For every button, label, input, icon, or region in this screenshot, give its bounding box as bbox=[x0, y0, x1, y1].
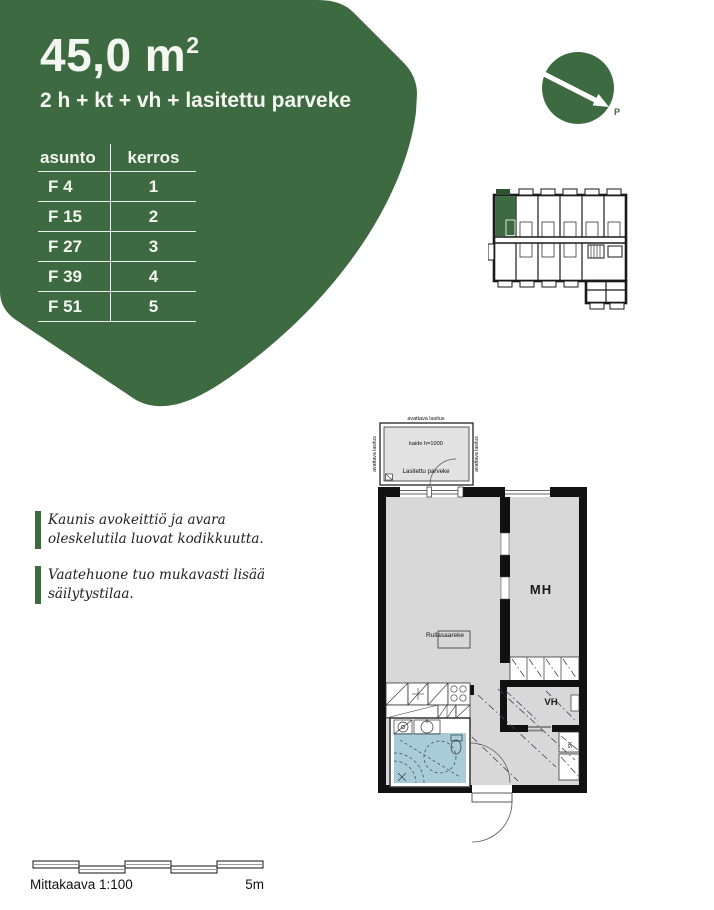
note-closet: Vaatehuone tuo mukavasti lisää säilytyst… bbox=[35, 566, 284, 604]
table-row: F 51 5 bbox=[38, 292, 196, 322]
apartment-floor-table: asunto kerros F 4 1 F 15 2 F 27 3 F 39 4… bbox=[38, 144, 196, 322]
building-floor-overview bbox=[488, 182, 636, 314]
table-row: F 4 1 bbox=[38, 172, 196, 202]
north-label: P bbox=[614, 107, 620, 117]
col-asunto: asunto bbox=[38, 148, 110, 168]
balcony-label: Lasitettu parveke bbox=[402, 468, 450, 475]
scale-text: Mittakaava 1:100 bbox=[30, 877, 133, 892]
cell-kerros: 5 bbox=[110, 292, 196, 321]
railing-label: kaide h=1000 bbox=[409, 441, 443, 447]
cleaning-closet-label: SK bbox=[568, 741, 574, 748]
table-header: asunto kerros bbox=[38, 144, 196, 172]
cell-kerros: 2 bbox=[110, 202, 196, 231]
compass-north-icon: P bbox=[540, 50, 640, 135]
note-text: Vaatehuone tuo mukavasti lisää säilytyst… bbox=[48, 566, 284, 604]
kitchen-island-label: Rullasaareke bbox=[426, 632, 464, 639]
col-kerros: kerros bbox=[110, 144, 196, 171]
balcony-glazing-right-label: avattava lasitus bbox=[474, 436, 480, 472]
table-row: F 39 4 bbox=[38, 262, 196, 292]
cell-asunto: F 4 bbox=[38, 177, 110, 197]
brochure-page: 45,0 m2 2 h + kt + vh + lasitettu parvek… bbox=[0, 0, 714, 910]
walkin-closet-label: VH bbox=[544, 697, 557, 708]
cell-asunto: F 39 bbox=[38, 267, 110, 287]
note-accent-bar bbox=[35, 566, 41, 604]
apartment-area: 45,0 m2 bbox=[40, 28, 200, 82]
area-value: 45,0 m bbox=[40, 29, 186, 81]
scale-max-label: 5m bbox=[245, 877, 264, 892]
cell-asunto: F 51 bbox=[38, 297, 110, 317]
floorplan: avattava lasitus avattava lasitus avatta… bbox=[360, 405, 680, 850]
table-row: F 27 3 bbox=[38, 232, 196, 262]
table-row: F 15 2 bbox=[38, 202, 196, 232]
note-text: Kaunis avokeittiö ja avara oleskelutila … bbox=[48, 511, 284, 549]
scale-caption: Mittakaava 1:100 5m bbox=[30, 877, 264, 892]
note-kitchen: Kaunis avokeittiö ja avara oleskelutila … bbox=[35, 511, 284, 549]
highlighted-unit bbox=[495, 196, 516, 236]
cell-asunto: F 15 bbox=[38, 207, 110, 227]
cell-kerros: 1 bbox=[110, 172, 196, 201]
balcony-glazing-left-label: avattava lasitus bbox=[372, 436, 378, 472]
scale-bar bbox=[28, 855, 278, 879]
balcony-glazing-top-label: avattava lasitus bbox=[407, 416, 444, 422]
apartment-layout-description: 2 h + kt + vh + lasitettu parveke bbox=[40, 89, 351, 113]
bedroom-label: MH bbox=[530, 582, 552, 597]
cell-kerros: 4 bbox=[110, 262, 196, 291]
cell-kerros: 3 bbox=[110, 232, 196, 261]
note-accent-bar bbox=[35, 511, 41, 549]
area-exponent: 2 bbox=[186, 32, 199, 58]
cell-asunto: F 27 bbox=[38, 237, 110, 257]
